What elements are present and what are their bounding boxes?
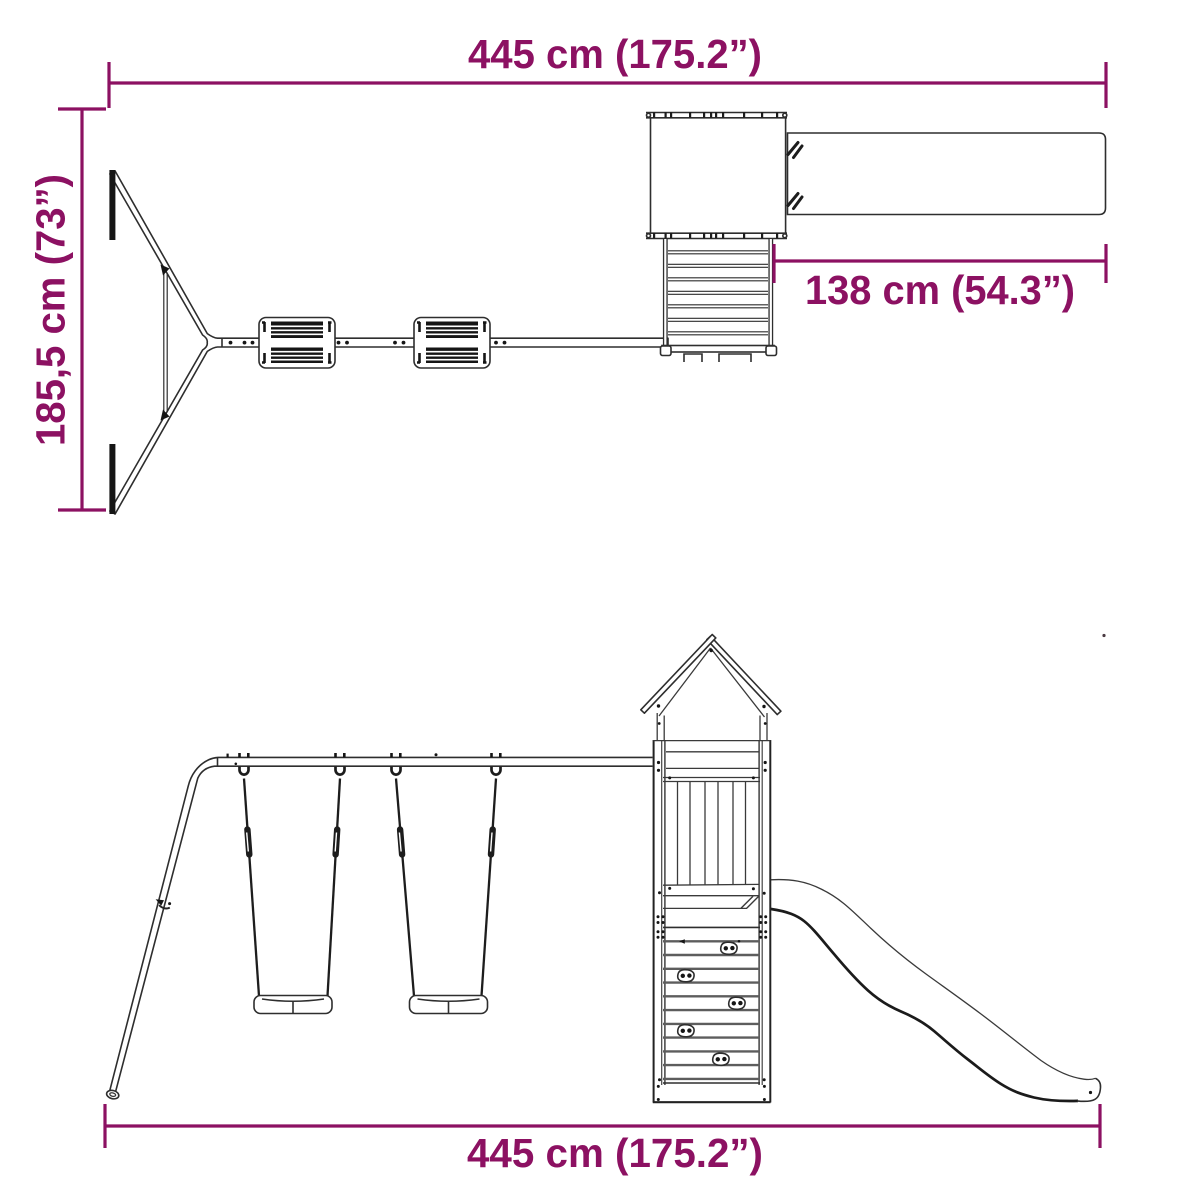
svg-text:445 cm (175.2”): 445 cm (175.2”) xyxy=(468,31,762,77)
svg-text:185,5 cm (73”): 185,5 cm (73”) xyxy=(28,174,74,446)
svg-text:138 cm (54.3”): 138 cm (54.3”) xyxy=(805,267,1075,313)
svg-text:445 cm (175.2”): 445 cm (175.2”) xyxy=(467,1130,763,1176)
